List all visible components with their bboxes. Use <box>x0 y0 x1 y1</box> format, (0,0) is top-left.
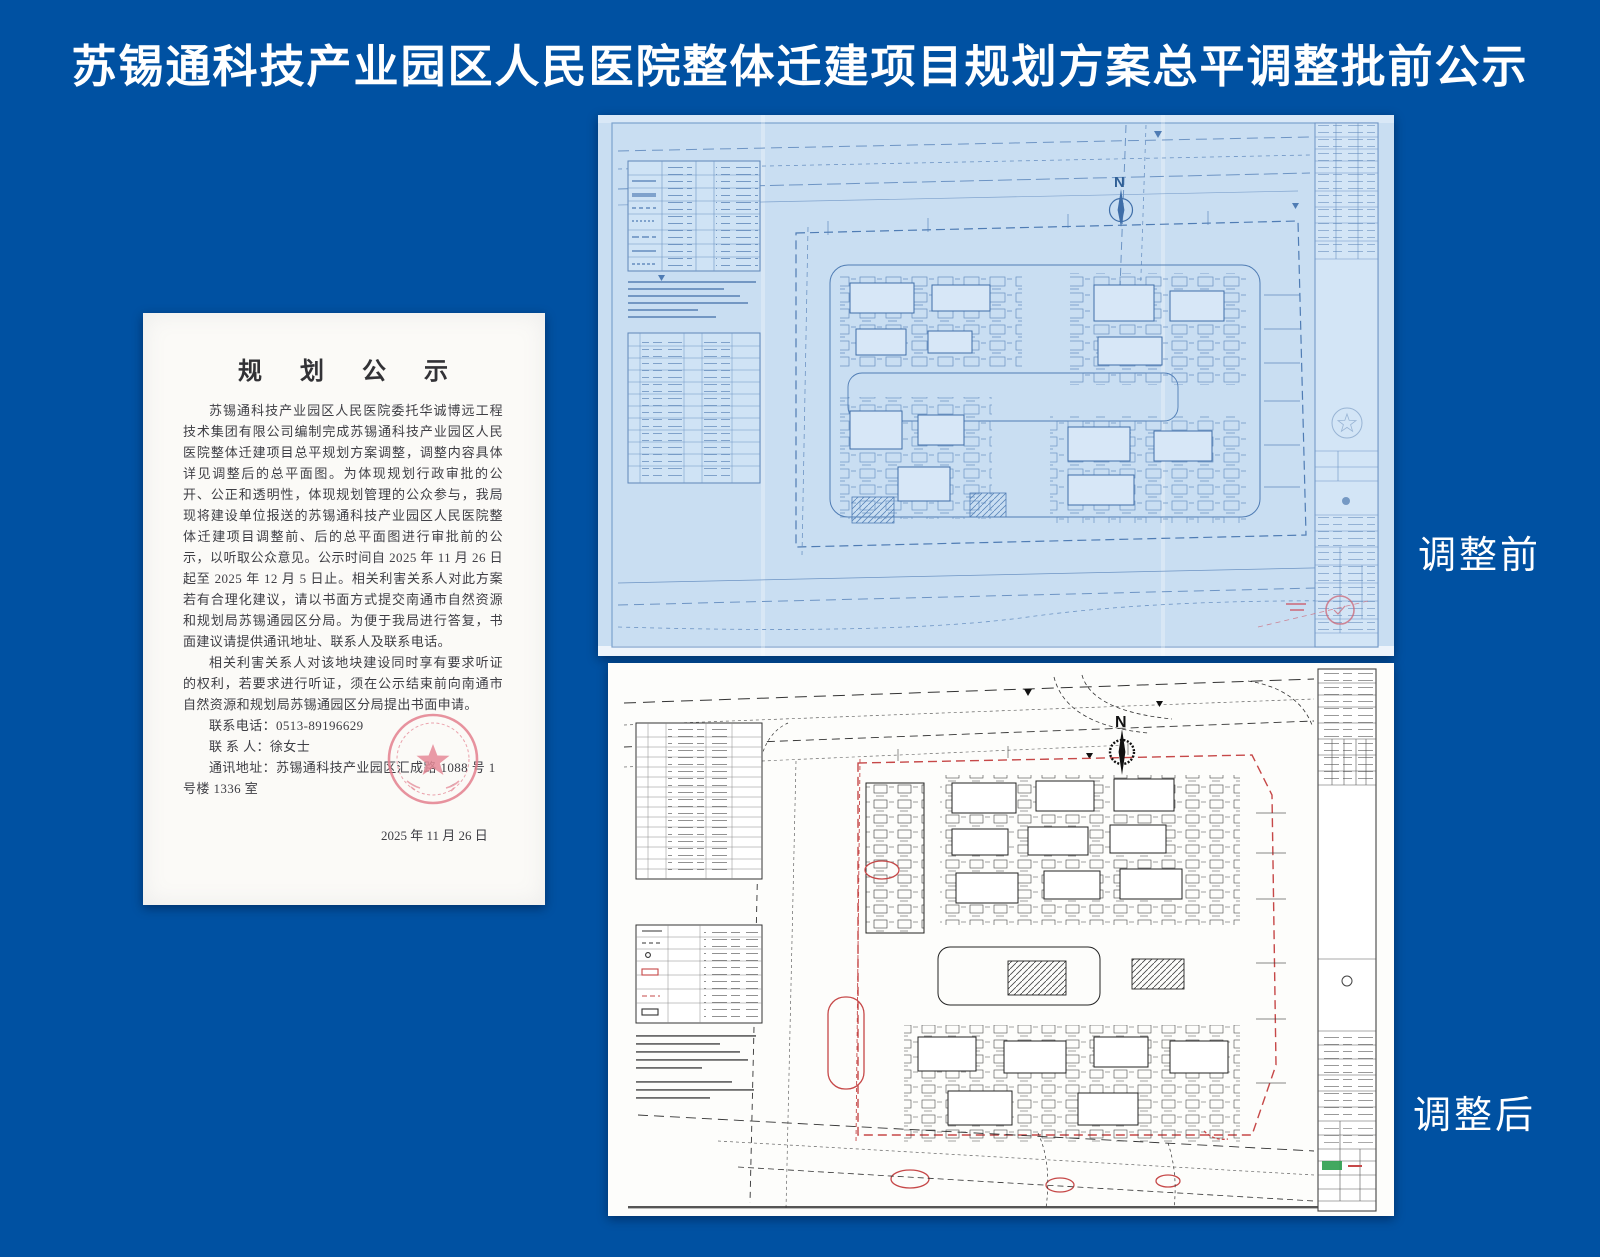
site-plan-before: N <box>598 115 1394 656</box>
document-paragraph-1: 苏锡通科技产业园区人民医院委托华诚博远工程技术集团有限公司编制完成苏锡通科技产业… <box>183 400 503 652</box>
paper-bottom-rule <box>628 1206 1320 1208</box>
legend-table <box>628 161 760 271</box>
indicators-table <box>628 333 760 483</box>
site-plan-after: N <box>608 663 1394 1216</box>
red-signature-mark <box>1348 1165 1362 1167</box>
seal-star-icon <box>417 744 450 775</box>
company-logo-icon <box>1342 497 1350 505</box>
title-block <box>1315 123 1378 647</box>
document-paragraph-2: 相关利害关系人对该地块建设同时享有要求听证的权利，若要求进行听证，须在公示结束前… <box>183 652 503 715</box>
public-notice-page: 苏锡通科技产业园区人民医院整体迁建项目规划方案总平调整批前公示 规 划 公 示 … <box>0 0 1600 1257</box>
document-date: 2025 年 11 月 26 日 <box>381 825 503 844</box>
official-seal-graphic <box>385 711 481 807</box>
green-approval-cell <box>1322 1161 1342 1170</box>
page-title: 苏锡通科技产业园区人民医院整体迁建项目规划方案总平调整批前公示 <box>0 30 1600 95</box>
north-label: N <box>1114 174 1125 191</box>
planning-notice-document: 规 划 公 示 苏锡通科技产业园区人民医院委托华诚博远工程技术集团有限公司编制完… <box>143 313 545 905</box>
north-label: N <box>1115 714 1127 731</box>
site-plan-before-drawing: N <box>598 115 1394 656</box>
indicators-table <box>636 723 762 879</box>
building-outlines <box>952 779 1182 903</box>
label-before-adjustment: 调整前 <box>1418 524 1541 579</box>
title-block <box>1318 669 1376 1211</box>
label-after-adjustment: 调整后 <box>1413 1084 1536 1139</box>
site-plan-after-drawing: N <box>608 663 1394 1216</box>
official-seal <box>385 711 481 807</box>
document-title: 规 划 公 示 <box>183 351 503 386</box>
